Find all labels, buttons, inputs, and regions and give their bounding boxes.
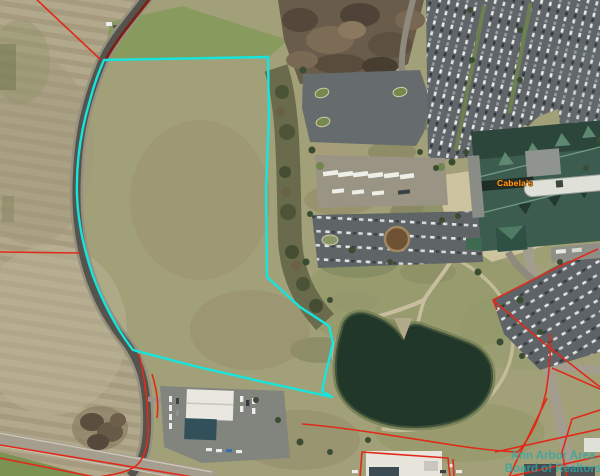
rv-lot	[315, 155, 448, 208]
empty-lot	[302, 70, 430, 146]
pavilion	[466, 238, 482, 250]
cabelas-building	[465, 120, 600, 269]
cabelas-label: Cabela's	[497, 178, 533, 188]
svg-text:Board of Realtors: Board of Realtors	[505, 463, 600, 475]
map-canvas[interactable]: Cabela's Ann Arbor Area Board of Realtor…	[0, 0, 600, 476]
svg-text:Ann Arbor Area: Ann Arbor Area	[511, 450, 596, 462]
watermark: Ann Arbor Area Board of Realtors	[505, 450, 600, 475]
shrub-cluster	[72, 406, 128, 450]
